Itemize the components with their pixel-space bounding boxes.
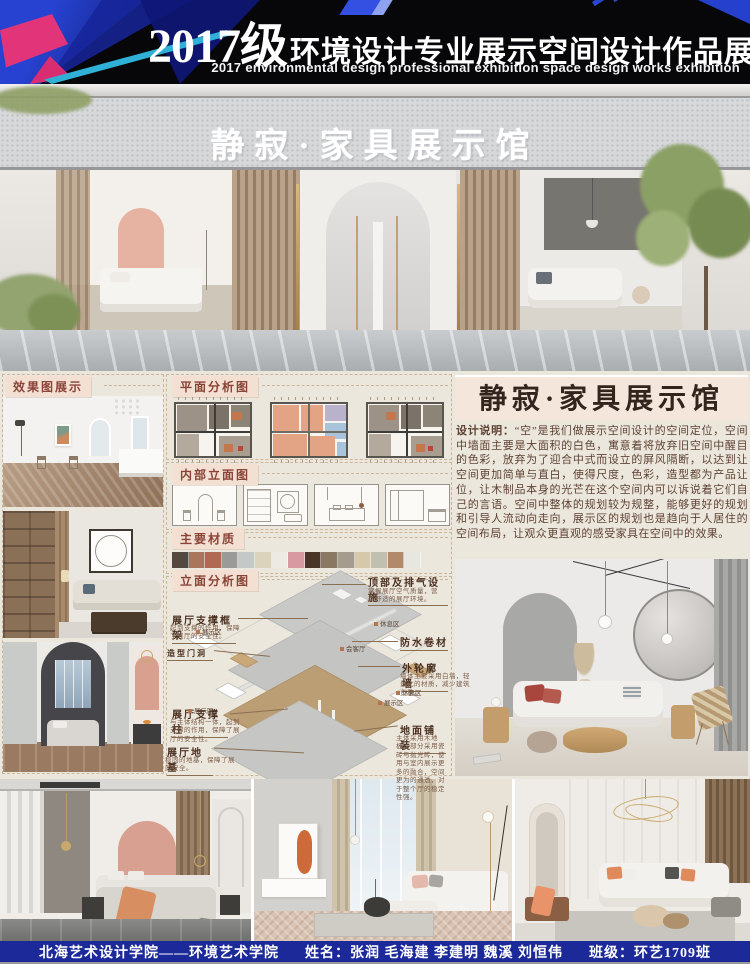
pendant-rod2 (605, 559, 694, 576)
roof-edge (0, 84, 750, 98)
elev-dash (262, 473, 448, 474)
curtain (0, 791, 44, 913)
floor-lamp-pole (490, 817, 491, 921)
elevation-panel-4 (385, 484, 450, 526)
pendant-cord (355, 779, 356, 835)
material-swatches (172, 552, 424, 568)
dark-pillow (665, 867, 679, 879)
school-name: 北海艺术设计学院——环境艺术学院 (39, 942, 279, 962)
wood-column-left (232, 170, 300, 330)
art-figure (297, 830, 312, 874)
display-window-bedroom (56, 170, 232, 330)
side-table-left (483, 707, 509, 743)
gray-wall-panel (44, 791, 90, 913)
gray-pillow (428, 874, 443, 887)
materials-label: 主要材质 (172, 528, 244, 549)
fruit-bowl (143, 720, 151, 724)
material-swatch (338, 552, 355, 568)
coffee-table (563, 727, 627, 753)
bed-pillow (110, 272, 130, 282)
storefront-body (0, 170, 750, 330)
zone-tag: 展示区 (378, 697, 404, 707)
elevation-analysis-label: 立面分析图 (172, 570, 258, 591)
footer-bar: 北海艺术设计学院——环境艺术学院 姓名：张润 毛海建 李建明 魏溪 刘恒伟 班级… (0, 941, 750, 962)
gold-pendant-ring (194, 855, 206, 867)
mat-dash (248, 537, 448, 538)
tree-foliage-3 (636, 210, 690, 266)
zone-tag: 会客厅 (340, 643, 366, 653)
white-pillow (623, 869, 636, 880)
coffee-table (91, 612, 147, 632)
window (131, 416, 149, 452)
interior-elevation-label: 内部立面图 (172, 464, 258, 485)
pendant-cord2 (667, 561, 668, 635)
chair2 (69, 456, 78, 469)
annotation-foundation-note: 稳固的地基，保障了展厅安全。 (165, 757, 235, 774)
kitchen-island (119, 449, 163, 477)
zone-tag: 展示区 (196, 626, 222, 636)
plan-label: 平面分析图 (172, 376, 258, 397)
gold-ring (141, 650, 153, 662)
elevation-panel-3 (314, 484, 379, 526)
floor-plan-3 (366, 402, 444, 458)
arch-room (41, 642, 105, 746)
red-pillow2 (542, 688, 562, 704)
bed-pillow2 (128, 871, 144, 880)
material-swatch (321, 552, 338, 568)
annotation-pillar-note: 与主体结构一体，起到支撑的作用，保障了展厅的安全性。 (170, 719, 244, 744)
pendant-rod (573, 561, 690, 589)
display-floor (520, 306, 682, 330)
floor-lamp-shade (15, 420, 25, 426)
zone-tag: 展示区 (188, 705, 214, 715)
nightstand-left (82, 897, 104, 919)
material-swatch (404, 552, 421, 568)
gold-pendant-cord (200, 791, 201, 857)
material-swatch (371, 552, 388, 568)
bed (96, 875, 216, 921)
material-swatch (222, 552, 239, 568)
ceiling-vent (40, 782, 100, 788)
bed-pillow (108, 871, 124, 880)
flower-stem (375, 879, 376, 897)
material-swatch (189, 552, 206, 568)
pendant-ball (350, 835, 360, 845)
window-view (55, 660, 91, 708)
coffee-table-small (663, 913, 689, 929)
glass-door-frame2 (396, 216, 398, 330)
design-description-body: “空”是我们做展示空间设计的空间定位，空间中墙面主要是大面积的白色，寓意着将放弃… (456, 425, 748, 540)
pendant-cord (605, 561, 606, 617)
material-swatch (255, 552, 272, 568)
gold-pole-left (296, 184, 299, 330)
elevation-panel-1 (172, 484, 237, 526)
plan-dash (262, 385, 448, 386)
bed-pillow (53, 721, 67, 728)
decor-stripe-right2 (612, 0, 655, 2)
class-name: 班级：环艺1709班 (589, 942, 711, 962)
tv-cabinet (262, 879, 326, 897)
round-art-circle (95, 535, 127, 567)
material-swatch (305, 552, 322, 568)
material-swatch (205, 552, 222, 568)
glass-door-frame (356, 216, 358, 330)
orange-pillow2 (680, 868, 695, 881)
bookshelf (3, 511, 55, 638)
effects-label: 效果图展示 (5, 376, 91, 397)
wood-floor (3, 742, 163, 772)
side-table-right (671, 705, 695, 739)
wall-art (55, 424, 71, 446)
arch-outline (218, 807, 244, 887)
bronze-pendant (66, 793, 67, 841)
dark-cabinet (133, 724, 161, 744)
zone-tag: 休息区 (396, 687, 422, 697)
render-living-bookshelf (3, 511, 163, 638)
arch-doorway (326, 182, 430, 330)
bronze-disc (61, 841, 71, 851)
pendant-globe (598, 615, 612, 629)
render-arch-bedroom (3, 642, 163, 772)
exhibition-poster: 2017级 环境设计专业展示空间设计作品展 2017 environmental… (0, 0, 750, 964)
stone-pavement (0, 330, 750, 371)
floor-lamp-ball (482, 811, 494, 823)
material-swatch (288, 552, 305, 568)
glossy-floor (0, 919, 251, 941)
orange-pillow (607, 866, 623, 879)
arch-inner (536, 812, 558, 896)
render-livingroom-sectional (515, 779, 750, 941)
door-gap-light (373, 222, 383, 330)
annotation-waterproof-label: 防水卷材 (400, 634, 448, 651)
lantern (61, 570, 69, 582)
zone-tag: 休息区 (374, 618, 400, 628)
material-swatch (272, 552, 289, 568)
wood-column-right (460, 170, 520, 330)
curtain-left (332, 779, 350, 911)
pink-arch (135, 656, 159, 710)
arch-window (89, 418, 111, 456)
perforated-facade: 静寂·家具展示馆 (0, 98, 750, 170)
sofa-pillow-dark (536, 272, 552, 284)
material-swatch (172, 552, 189, 568)
elevation-panel-2 (243, 484, 308, 526)
nook (131, 646, 163, 744)
ceiling (0, 779, 251, 791)
annotation-vent-note: 掌握展厅空气质量，营造舒适的展厅环境。 (368, 588, 444, 605)
pink-pillow (411, 874, 428, 888)
table-lamp-ball (491, 697, 501, 707)
authors: 姓名：张润 毛海建 李建明 魏溪 刘恒伟 (305, 942, 563, 962)
sofa-pillow (83, 584, 95, 594)
pillar-mid (107, 642, 129, 744)
design-description: 设计说明：“空”是我们做展示空间设计的空间定位，空间中墙面主要是大面积的白色，寓… (456, 424, 748, 557)
tree-foliage-2 (688, 188, 750, 258)
leaning-art (278, 823, 318, 879)
coffee-table (364, 897, 390, 917)
project-title-box: 静寂·家具展示馆 (455, 375, 748, 421)
annotation-paving-note: 主体采用木地板，部分采用瓷砖与抛光砖，使用与室内展示更多的融合，空间更为的通透，… (396, 735, 446, 803)
header-banner: 2017级 环境设计专业展示空间设计作品展 2017 environmental… (0, 0, 750, 84)
stone-stool (527, 731, 557, 753)
project-title: 静寂·家具展示馆 (455, 377, 748, 423)
ottoman (711, 897, 741, 917)
storefront-sign-text: 静寂·家具展示馆 (0, 118, 750, 167)
floor-plan-2 (270, 402, 348, 458)
material-swatch (355, 552, 372, 568)
storefront-render: 静寂·家具展示馆 (0, 84, 750, 371)
render-bedroom-pink-arch (0, 779, 251, 941)
nightstand-right (220, 895, 240, 915)
tree-trunk (704, 266, 708, 330)
striped-pillow (623, 685, 641, 699)
side-table-round (632, 286, 650, 304)
material-swatch (388, 552, 405, 568)
material-swatch (238, 552, 255, 568)
floor-lamp-pole (21, 422, 22, 456)
pendant-globe2 (661, 633, 673, 645)
chandelier (113, 398, 141, 416)
render-main-livingroom (455, 559, 748, 776)
round-art-frame (89, 529, 133, 573)
title-english-subtitle: 2017 environmental design professional e… (211, 60, 740, 75)
arch-doorway (529, 803, 565, 897)
render-dining-room (3, 396, 163, 507)
floor-plan-1 (174, 402, 252, 458)
pendant-cord (592, 178, 593, 220)
effects-dash (104, 385, 160, 386)
pillar-left (3, 642, 37, 744)
design-description-label: 设计说明： (456, 425, 515, 437)
render-livingroom-window (254, 779, 512, 941)
arch-entrance-wall (300, 170, 456, 330)
floor-lamp (206, 230, 207, 290)
chair (37, 456, 46, 469)
round-mirror (633, 589, 725, 681)
annotation-door-label: 造型门洞 (167, 648, 213, 661)
